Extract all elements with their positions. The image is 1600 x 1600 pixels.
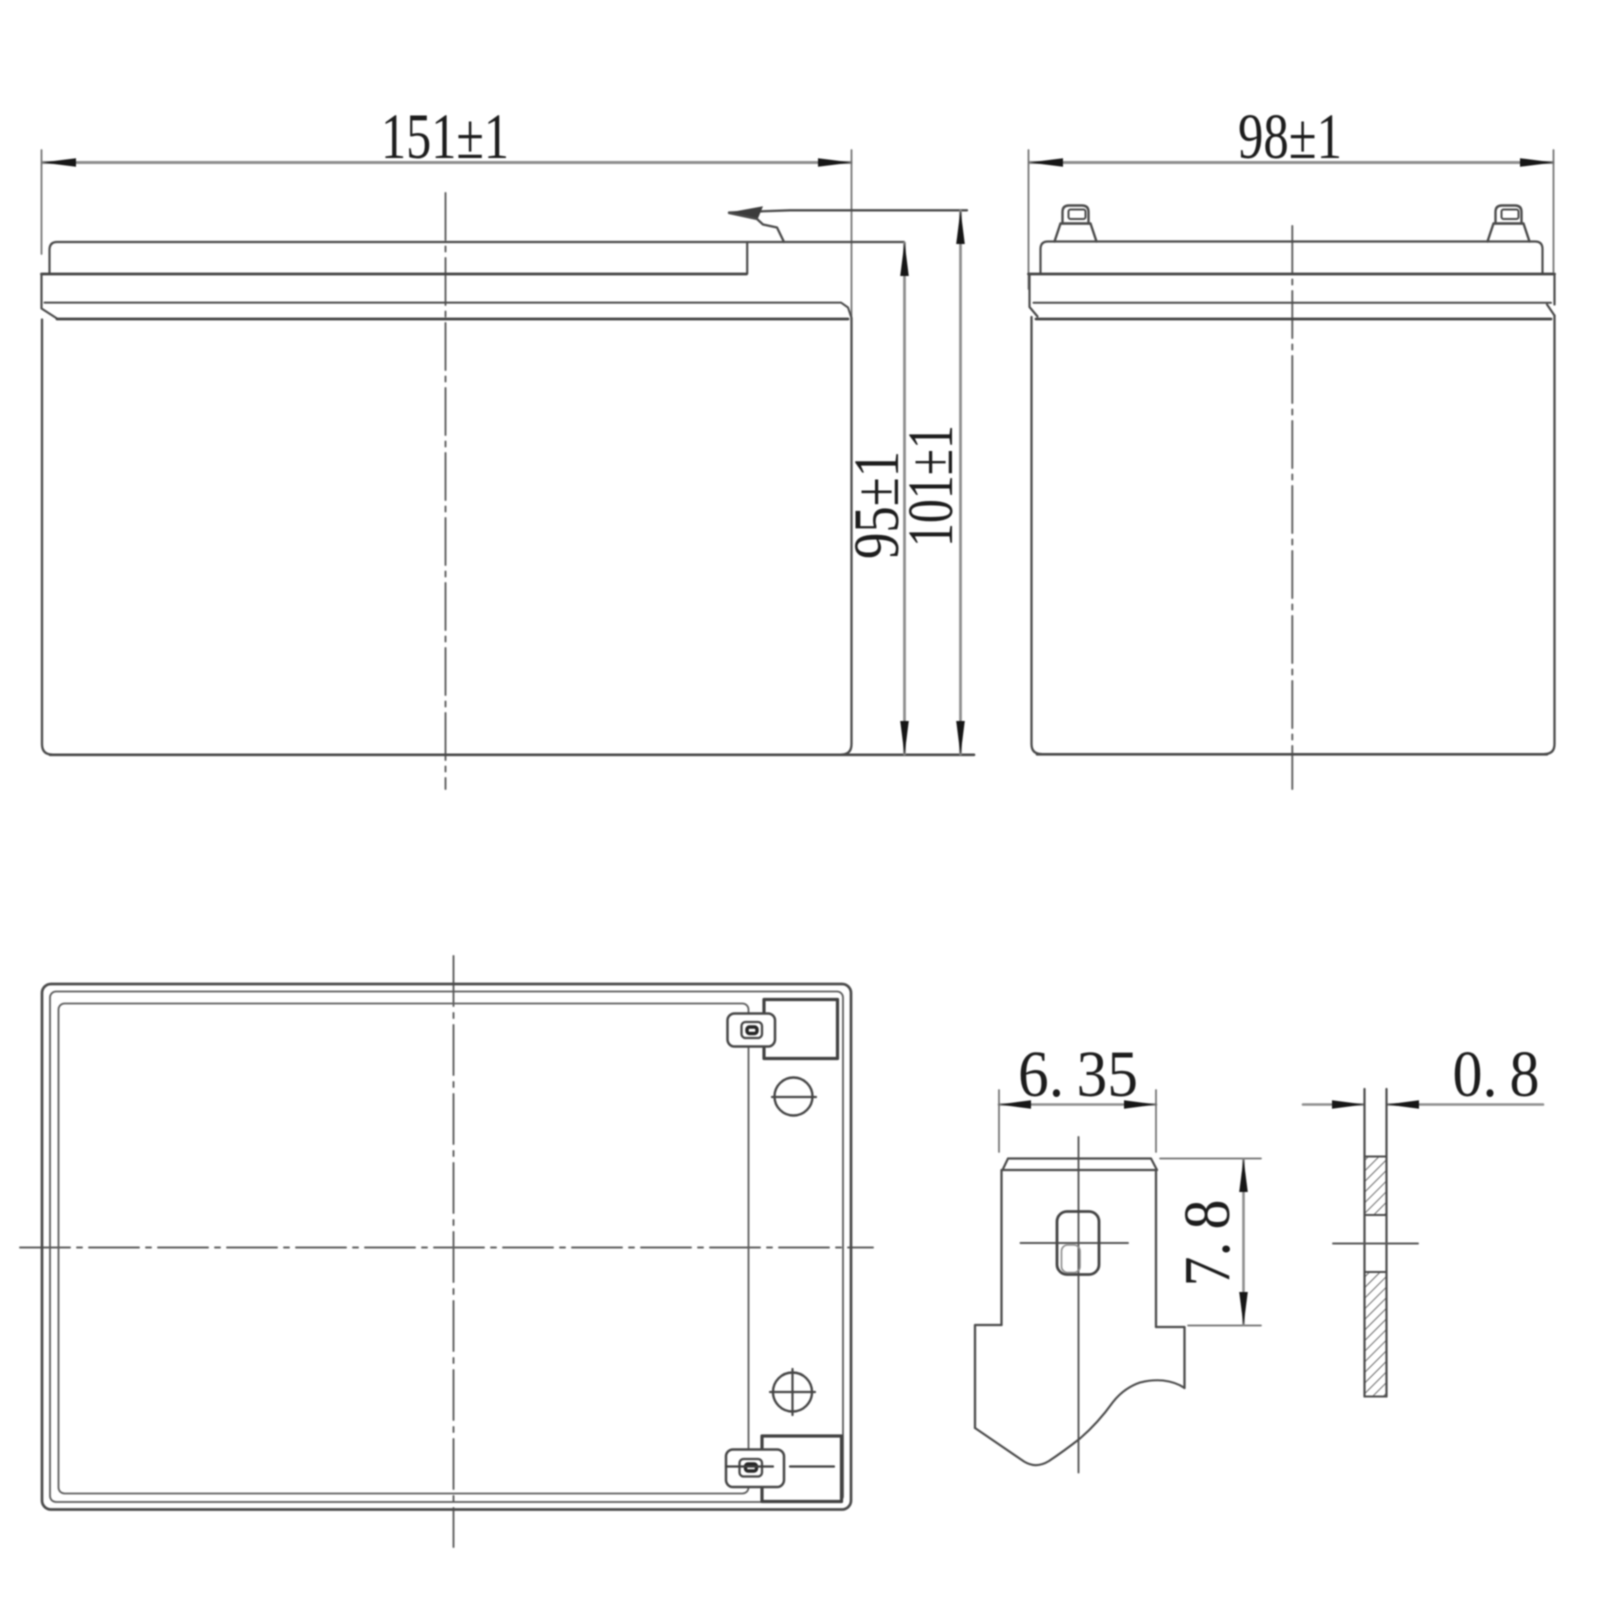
svg-text:7. 8: 7. 8 [1171,1200,1244,1287]
svg-text:101±1: 101±1 [895,425,967,547]
svg-text:6. 35: 6. 35 [1018,1038,1138,1111]
svg-text:0. 8: 0. 8 [1453,1038,1540,1111]
